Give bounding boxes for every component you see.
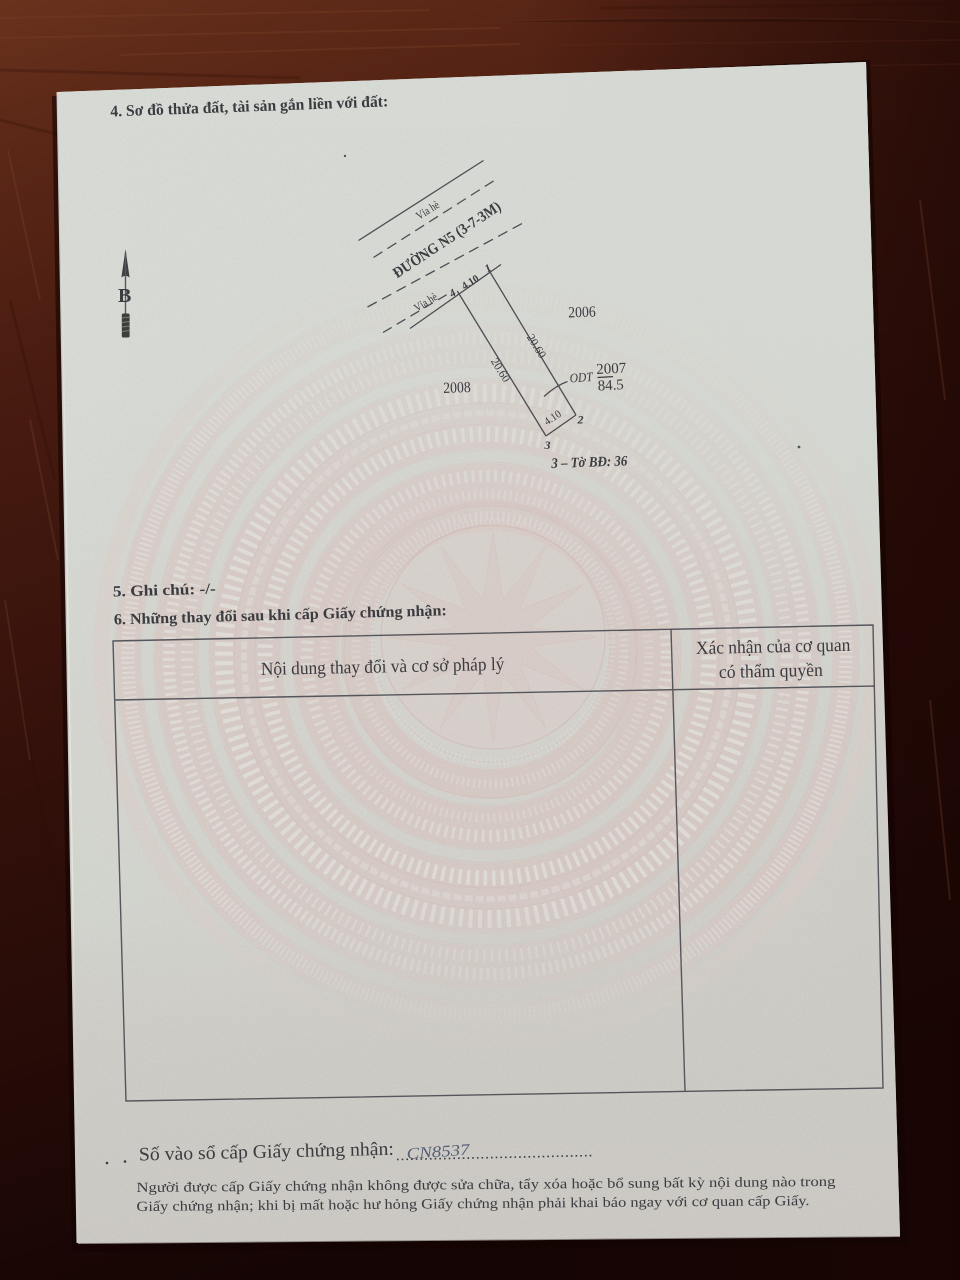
svg-text:có thẩm quyền: có thẩm quyền <box>719 661 823 683</box>
svg-text:B: B <box>118 285 131 307</box>
svg-text:3: 3 <box>544 438 551 452</box>
svg-text:2: 2 <box>577 413 584 427</box>
svg-text:ODT: ODT <box>569 369 594 386</box>
svg-text:84.5: 84.5 <box>597 377 624 394</box>
svg-text:2007: 2007 <box>596 360 627 378</box>
svg-text:Xác nhận của cơ quan: Xác nhận của cơ quan <box>696 636 851 659</box>
svg-text:3 – Tờ BĐ: 36: 3 – Tờ BĐ: 36 <box>550 453 628 472</box>
svg-text:5. Ghi chú: -/-: 5. Ghi chú: -/- <box>113 581 216 601</box>
svg-text:2008: 2008 <box>443 379 471 397</box>
svg-text:2006: 2006 <box>568 304 596 322</box>
